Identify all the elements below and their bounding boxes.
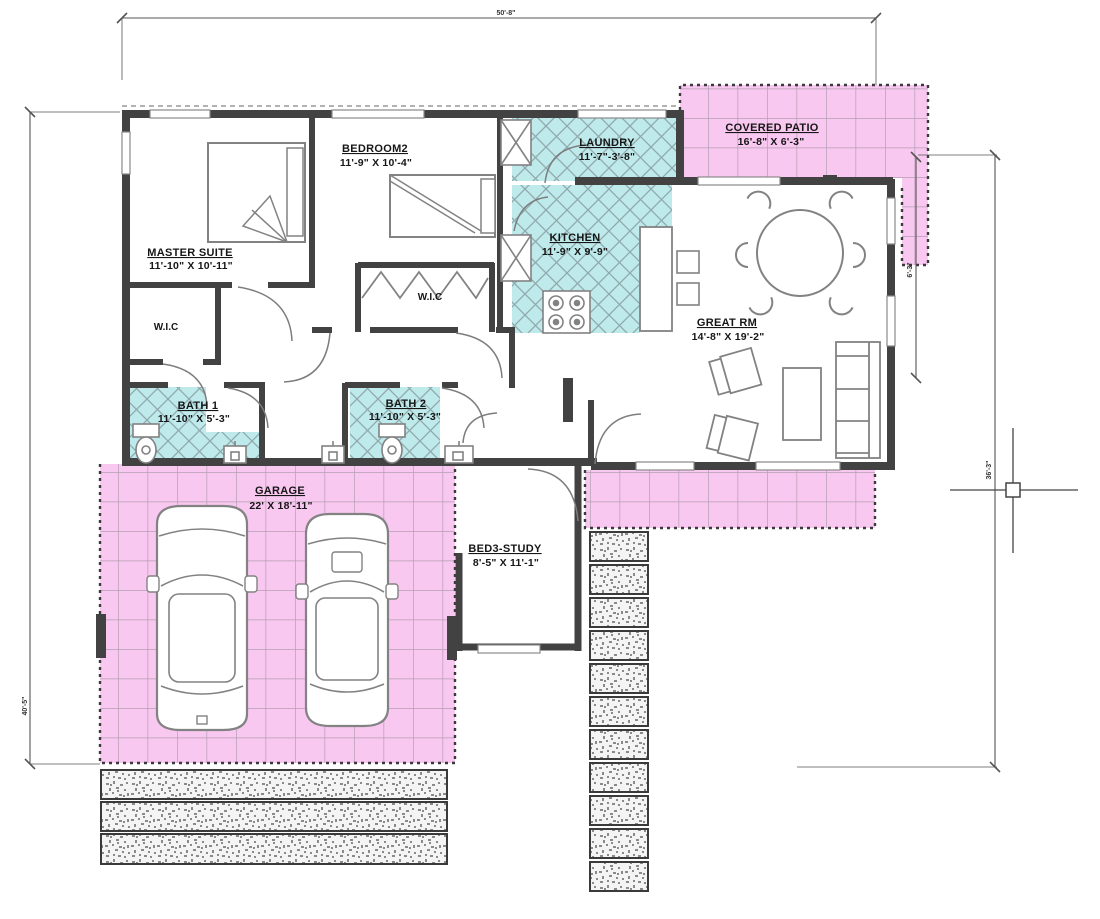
dining-chair xyxy=(826,188,853,209)
coffee-table xyxy=(783,368,821,440)
dim-label-patio-right: 6'-3" xyxy=(907,262,914,277)
dim-label-top: 50'-8" xyxy=(497,10,516,17)
kitchen-counter xyxy=(640,227,672,331)
room-dims-bath1: 11'-10" X 5'-3" xyxy=(158,413,230,425)
paver-block xyxy=(590,697,648,726)
paver-block xyxy=(590,862,648,891)
window xyxy=(636,462,694,470)
paver-block xyxy=(590,664,648,693)
dim-label-right: 36'-3" xyxy=(986,461,993,480)
cad-crosshair-cursor xyxy=(950,428,1078,553)
room-dims-garage: 22' X 18'-11" xyxy=(249,500,312,512)
paver-block xyxy=(590,829,648,858)
paver-block xyxy=(590,532,648,561)
dim-label-left: 40'-5" xyxy=(22,697,29,716)
room-label-bath1: BATH 1 xyxy=(178,400,219,412)
dining-chair xyxy=(826,297,853,318)
door-arc xyxy=(456,333,502,378)
paver-block xyxy=(590,631,648,660)
toilet xyxy=(379,424,405,463)
bedroom2-bed xyxy=(390,175,495,237)
window xyxy=(698,177,780,185)
window xyxy=(332,110,424,118)
paver-block xyxy=(590,763,648,792)
rear-patio-strip xyxy=(585,470,875,528)
room-label-bedroom2: BEDROOM2 xyxy=(342,143,408,155)
window xyxy=(578,110,666,118)
door-arc xyxy=(595,414,641,464)
garage-pier xyxy=(96,614,106,658)
armchair xyxy=(706,413,758,461)
console-box xyxy=(677,251,699,273)
dining-chair xyxy=(736,243,748,267)
window xyxy=(150,110,210,118)
dining-table xyxy=(736,188,865,319)
toilet xyxy=(133,424,159,463)
room-label-covered-patio: COVERED PATIO xyxy=(725,122,818,134)
room-label-great-room: GREAT RM xyxy=(697,317,757,329)
door-arc xyxy=(284,333,330,382)
cad-canvas[interactable]: MASTER SUITE 11'-10" X 10'-11" BEDROOM2 … xyxy=(0,0,1100,919)
pickbox xyxy=(1006,483,1020,497)
room-dims-laundry: 11'-7"-3'-8" xyxy=(579,151,635,163)
window xyxy=(478,645,540,653)
garage-pier xyxy=(447,616,457,660)
window xyxy=(887,198,895,244)
paver-block xyxy=(590,598,648,627)
floor-plan-drawing: MASTER SUITE 11'-10" X 10'-11" BEDROOM2 … xyxy=(0,0,1100,919)
stove xyxy=(543,291,590,333)
window xyxy=(887,296,895,346)
door-arc xyxy=(528,469,578,521)
dining-chair xyxy=(747,188,774,209)
room-label-master-suite: MASTER SUITE xyxy=(147,247,233,259)
paver-block xyxy=(590,796,648,825)
appliance-box xyxy=(501,235,531,281)
room-dims-bedroom2: 11'-9" X 10'-4" xyxy=(340,157,412,169)
room-label-wic-master: W.I.C xyxy=(154,322,178,333)
room-dims-bath2: 11'-10" X 5'-3" xyxy=(369,411,441,423)
room-label-bath2: BATH 2 xyxy=(386,398,427,410)
paver-block xyxy=(590,730,648,759)
room-dims-kitchen: 11'-9" X 9'-9" xyxy=(542,246,608,258)
master-bed xyxy=(208,143,305,242)
appliance-box xyxy=(501,120,531,165)
dining-chair xyxy=(853,243,865,267)
sofa xyxy=(836,342,880,458)
room-label-kitchen: KITCHEN xyxy=(550,232,601,244)
door-arc xyxy=(463,413,497,443)
room-label-bed3-study: BED3-STUDY xyxy=(468,543,542,555)
door-jamb xyxy=(563,378,573,422)
room-dims-bed3-study: 8'-5" X 11'-1" xyxy=(473,557,539,569)
vanity-sink xyxy=(322,441,344,463)
walkway-strip xyxy=(101,802,447,831)
room-dims-covered-patio: 16'-8" X 6'-3" xyxy=(738,136,805,148)
room-label-wic-hall: W.I.C xyxy=(418,292,442,303)
window xyxy=(756,462,840,470)
console-box xyxy=(677,283,699,305)
paver-block xyxy=(590,565,648,594)
door-jamb xyxy=(823,175,837,185)
window xyxy=(122,132,130,174)
room-dims-great-room: 14'-8" X 19'-2" xyxy=(692,331,765,343)
room-label-laundry: LAUNDRY xyxy=(579,137,635,149)
room-label-garage: GARAGE xyxy=(255,485,305,497)
sedan-car xyxy=(296,514,398,726)
walkway-strip xyxy=(101,834,447,864)
armchair xyxy=(709,348,762,397)
suv-car xyxy=(147,506,257,730)
walkway-strip xyxy=(101,770,447,799)
room-dims-master-suite: 11'-10" X 10'-11" xyxy=(149,260,233,272)
door-arc xyxy=(442,388,484,428)
vanity-sink xyxy=(445,441,473,463)
door-arc xyxy=(238,287,292,341)
dining-chair xyxy=(749,297,776,318)
